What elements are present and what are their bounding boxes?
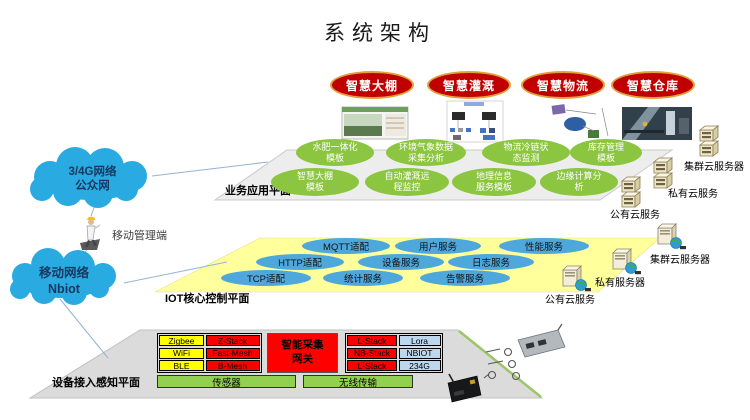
iot-service-oval: 设备服务: [358, 254, 444, 270]
app-service-oval: 库存管理 模板: [570, 139, 642, 166]
protocol-cell: WiFi: [159, 348, 204, 359]
page-title: 系统架构: [280, 17, 480, 47]
top-app-oval-logistics: 智慧物流: [521, 71, 605, 99]
protocol-cell: B-Mesh: [206, 360, 260, 371]
protocol-cell: Zigbee: [159, 335, 204, 346]
warehouse-photo-image: [622, 107, 692, 140]
app-service-oval: 环境气象数据 采集分析: [386, 139, 466, 166]
smart-gateway-box: 智能采集 网关: [267, 333, 338, 373]
iot-service-oval: MQTT适配: [302, 238, 390, 254]
protocol-cell: Fast-Mesh: [206, 348, 260, 359]
iot-public-server-label: 公有云服务: [545, 291, 595, 306]
private-cloud-server-icon: [654, 158, 672, 188]
iot-service-oval: 性能服务: [499, 238, 589, 254]
irrigation-topology-image: [447, 101, 503, 142]
private-cloud-server-label: 私有云服务: [668, 185, 718, 200]
device-plane-label: 设备接入感知平面: [52, 374, 140, 390]
iot-service-oval: 告警服务: [420, 270, 510, 286]
mobile-admin-person-icon: [80, 217, 100, 250]
wireless-cell: 234G: [399, 360, 441, 371]
iot-plane-label: IOT核心控制平面: [165, 290, 249, 306]
wireless-cell: NB-Stack: [347, 348, 397, 359]
app-service-oval: 水肥一体化 模板: [296, 139, 374, 166]
wireless-table: L-Stack Lora NB-Stack NBIOT L-Stack 234G: [345, 333, 443, 373]
app-service-oval: 地理信息 服务模板: [452, 168, 536, 196]
logistics-devices-image: [536, 104, 614, 142]
wireless-transmission-bar: 无线传输: [303, 375, 413, 388]
wireless-cell: NBIOT: [399, 348, 441, 359]
iot-private-server-label: 私有服务器: [595, 274, 645, 289]
iot-service-oval: TCP适配: [221, 270, 311, 286]
iot-cluster-server-label: 集群云服务器: [650, 251, 710, 266]
wireless-cell: L-Stack: [347, 360, 397, 371]
metal-gateway-device-image: [518, 324, 565, 357]
iot-cluster-server-icon: [658, 224, 686, 249]
app-service-oval: 边缘计算分 析: [540, 168, 618, 196]
app-service-oval: 自动灌溉远 程监控: [365, 168, 449, 196]
top-app-oval-greenhouse: 智慧大棚: [330, 71, 414, 99]
iot-service-oval: HTTP适配: [256, 254, 344, 270]
iot-service-oval: 用户服务: [395, 238, 481, 254]
greenhouse-screenshot-image: [342, 107, 408, 139]
mobile-terminal-label: 移动管理端: [112, 227, 167, 243]
top-app-oval-warehouse: 智慧仓库: [611, 71, 695, 99]
sensor-bar: 传感器: [157, 375, 296, 388]
cluster-cloud-server-label: 集群云服务器: [684, 158, 744, 173]
public-cloud-server-icon: [622, 177, 640, 207]
top-app-oval-irrigation: 智慧灌溉: [427, 71, 511, 99]
nbiot-cloud-label: 移动网络 Nbiot: [12, 266, 116, 297]
public-network-cloud-label: 3/4G网络 公众网: [35, 165, 150, 194]
protocol-cell: Z-Stack: [206, 335, 260, 346]
iot-service-oval: 日志服务: [448, 254, 534, 270]
protocol-cell: BLE: [159, 360, 204, 371]
app-service-oval: 物流冷链状 态监测: [482, 139, 570, 166]
cluster-cloud-server-icon: [700, 126, 718, 156]
public-cloud-server-label: 公有云服务: [610, 206, 660, 221]
iot-service-oval: 统计服务: [323, 270, 403, 286]
wireless-cell: L-Stack: [347, 335, 397, 346]
wireless-cell: Lora: [399, 335, 441, 346]
protocol-table: Zigbee Z-Stack WiFi Fast-Mesh BLE B-Mesh: [157, 333, 262, 373]
app-service-oval: 智慧大棚 模板: [271, 168, 359, 196]
